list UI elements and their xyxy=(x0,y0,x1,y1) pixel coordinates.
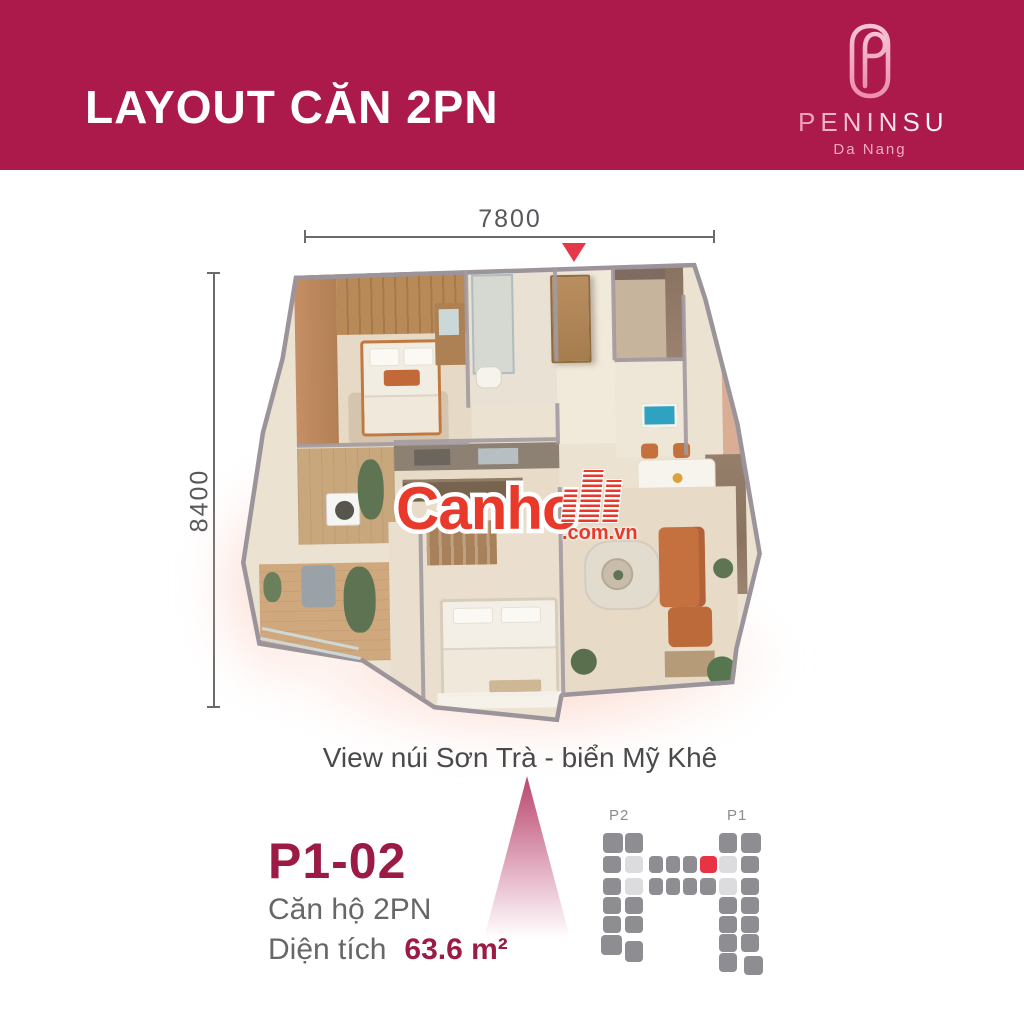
dimension-width-label: 7800 xyxy=(305,205,715,234)
header-banner: LAYOUT CĂN 2PN PENINSULA Da Nang xyxy=(0,0,1024,170)
watermark-text: Canho xyxy=(396,474,578,543)
site-unit xyxy=(666,856,680,873)
site-unit xyxy=(741,897,759,914)
watermark: Canho Canho .com.vn xyxy=(396,474,656,552)
site-unit xyxy=(741,856,759,873)
unit-code: P1-02 xyxy=(268,832,406,890)
site-unit xyxy=(625,833,643,853)
brand-location: Da Nang xyxy=(798,141,942,158)
dimension-tick xyxy=(207,706,220,708)
dimension-tick xyxy=(304,230,306,243)
site-plan: P2 P1 xyxy=(595,805,855,990)
site-unit xyxy=(625,878,643,895)
site-unit xyxy=(625,897,643,914)
site-unit xyxy=(719,934,737,952)
view-pointer-icon xyxy=(484,776,570,938)
tower-label-p2: P2 xyxy=(609,807,629,824)
site-unit xyxy=(666,878,680,895)
page-title: LAYOUT CĂN 2PN xyxy=(85,80,499,134)
entry-marker-icon xyxy=(562,243,586,262)
brand-name: PENINSULA xyxy=(798,107,942,138)
peninsula-monogram-icon xyxy=(798,22,942,100)
site-unit-highlighted xyxy=(700,856,717,873)
site-unit xyxy=(601,935,622,955)
site-unit xyxy=(625,856,643,873)
site-unit xyxy=(603,856,621,873)
site-unit xyxy=(603,878,621,895)
site-unit xyxy=(719,953,737,972)
watermark-domain: .com.vn xyxy=(562,522,638,545)
page: LAYOUT CĂN 2PN PENINSULA Da Nang 7800 xyxy=(0,0,1024,1024)
site-unit xyxy=(719,916,737,933)
buildings-icon xyxy=(561,470,622,522)
site-unit xyxy=(744,956,763,975)
site-unit xyxy=(683,856,697,873)
unit-area-label: Diện tích xyxy=(268,933,386,966)
site-unit xyxy=(741,833,761,853)
view-caption: View núi Sơn Trà - biển Mỹ Khê xyxy=(300,742,740,774)
site-unit xyxy=(741,878,759,895)
site-unit xyxy=(603,897,621,914)
site-unit xyxy=(741,934,759,952)
site-unit xyxy=(719,856,737,873)
brand-logo: PENINSULA Da Nang xyxy=(798,22,942,158)
site-unit xyxy=(700,878,716,895)
unit-area: Diện tích63.6 m² xyxy=(268,933,508,967)
site-unit xyxy=(649,856,663,873)
site-unit xyxy=(719,833,737,853)
dimension-width-line xyxy=(305,236,715,238)
site-unit xyxy=(683,878,697,895)
unit-type: Căn hộ 2PN xyxy=(268,893,431,927)
site-unit xyxy=(603,916,621,933)
site-unit xyxy=(649,878,663,895)
site-unit xyxy=(719,878,737,895)
unit-area-value: 63.6 m² xyxy=(404,933,507,966)
dimension-tick xyxy=(713,230,715,243)
dimension-tick xyxy=(207,272,220,274)
site-unit xyxy=(625,941,643,962)
site-unit xyxy=(719,897,737,914)
site-unit xyxy=(603,833,623,853)
tower-label-p1: P1 xyxy=(727,807,747,824)
site-unit xyxy=(625,916,643,933)
site-unit xyxy=(741,916,759,933)
